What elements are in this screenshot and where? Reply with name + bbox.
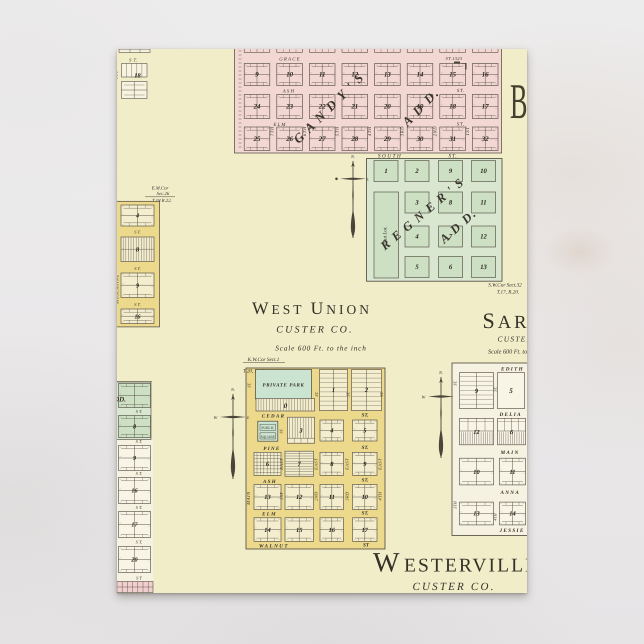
- svg-text:23: 23: [285, 104, 293, 111]
- svg-text:5TH: 5TH: [335, 126, 340, 136]
- svg-text:3: 3: [414, 200, 419, 207]
- svg-text:ST.: ST.: [314, 391, 319, 396]
- svg-text:ST.: ST.: [362, 510, 369, 516]
- svg-text:L: L: [366, 178, 369, 182]
- svg-text:ST.1323: ST.1323: [446, 56, 463, 61]
- svg-text:1ST: 1ST: [279, 492, 284, 500]
- svg-text:12: 12: [480, 234, 487, 241]
- svg-text:7TH: 7TH: [269, 126, 274, 136]
- svg-text:ST.: ST.: [452, 380, 457, 385]
- svg-text:24: 24: [253, 104, 261, 111]
- svg-text:PRIVATE PARK: PRIVATE PARK: [263, 383, 305, 389]
- svg-text:16: 16: [131, 488, 138, 495]
- svg-text:10: 10: [480, 168, 487, 175]
- svg-text:29: 29: [383, 136, 391, 143]
- svg-text:8: 8: [136, 246, 139, 253]
- svg-text:4: 4: [414, 234, 419, 241]
- svg-text:W: W: [214, 415, 218, 420]
- svg-text:0: 0: [284, 402, 288, 410]
- svg-text:ESTERVILLE: ESTERVILLE: [404, 556, 527, 577]
- svg-text:B: B: [510, 73, 527, 129]
- svg-text:ASH: ASH: [282, 88, 295, 94]
- svg-text:WALNUT: WALNUT: [259, 543, 289, 549]
- svg-text:5: 5: [509, 387, 513, 395]
- svg-text:EAST: EAST: [378, 458, 383, 471]
- svg-text:3RD: 3RD: [345, 491, 350, 501]
- svg-text:ANNA: ANNA: [500, 490, 521, 496]
- svg-text:25: 25: [253, 136, 261, 143]
- svg-text:Sec.26: Sec.26: [157, 191, 170, 197]
- svg-text:4TH: 4TH: [493, 512, 498, 520]
- svg-text:14: 14: [509, 511, 515, 518]
- svg-text:1 S T.: 1 S T.: [117, 71, 119, 79]
- svg-text:ST.: ST.: [493, 386, 498, 391]
- svg-text:MAIN: MAIN: [500, 450, 520, 456]
- svg-text:17: 17: [362, 527, 369, 534]
- svg-text:S T.: S T.: [136, 471, 143, 476]
- svg-text:N.: N.: [230, 387, 235, 392]
- svg-text:11: 11: [319, 72, 325, 79]
- svg-text:16: 16: [482, 72, 489, 79]
- svg-text:8: 8: [133, 424, 136, 431]
- svg-text:CUSTER CO.: CUSTER CO.: [412, 581, 495, 593]
- svg-text:S T.: S T.: [129, 57, 138, 62]
- svg-text:T.17, R.20.: T.17, R.20.: [497, 290, 520, 296]
- svg-text:17: 17: [482, 104, 489, 111]
- svg-text:4: 4: [329, 428, 333, 435]
- svg-text:3RD: 3RD: [400, 126, 405, 136]
- svg-text:20: 20: [383, 104, 391, 111]
- svg-text:32: 32: [481, 136, 489, 143]
- svg-text:31: 31: [448, 136, 456, 143]
- svg-text:EAST: EAST: [279, 458, 284, 471]
- svg-text:10: 10: [286, 72, 293, 79]
- svg-text:ST.: ST.: [457, 122, 465, 128]
- svg-text:N.: N.: [438, 370, 443, 375]
- svg-text:E.M.Cor: E.M.Cor: [151, 186, 169, 192]
- svg-text:12: 12: [296, 494, 303, 501]
- svg-text:ST: ST: [363, 542, 370, 548]
- svg-text:N.: N.: [350, 154, 355, 159]
- svg-text:ST.: ST.: [246, 382, 251, 387]
- svg-text:15: 15: [296, 527, 303, 534]
- svg-text:4TH: 4TH: [378, 491, 383, 500]
- svg-text:CUSTER CO.: CUSTER CO.: [276, 325, 354, 336]
- svg-text:9: 9: [255, 72, 259, 79]
- svg-text:13: 13: [384, 72, 391, 79]
- svg-text:4: 4: [135, 213, 139, 220]
- svg-text:DELIA: DELIA: [499, 412, 522, 418]
- svg-text:18: 18: [449, 104, 456, 111]
- svg-text:13: 13: [264, 494, 271, 501]
- svg-text:16: 16: [135, 314, 141, 320]
- svg-text:CUSTER CO.: CUSTER CO.: [498, 335, 528, 344]
- svg-text:4TH: 4TH: [367, 126, 372, 136]
- svg-text:9: 9: [136, 282, 139, 289]
- svg-text:Scale 600 Ft. to the inch: Scale 600 Ft. to the inch: [275, 344, 366, 353]
- svg-text:W: W: [422, 394, 426, 399]
- svg-text:2ND: 2ND: [314, 491, 319, 501]
- svg-text:15: 15: [449, 72, 456, 79]
- svg-text:16: 16: [329, 527, 336, 534]
- svg-text:13: 13: [473, 511, 480, 518]
- svg-text:S T.: S T.: [134, 302, 141, 307]
- svg-text:2ND: 2ND: [432, 126, 437, 137]
- svg-text:21: 21: [350, 104, 358, 111]
- svg-text:18: 18: [134, 73, 141, 80]
- svg-text:S T.: S T.: [136, 505, 143, 510]
- svg-text:ST.: ST.: [279, 428, 284, 433]
- svg-text:17: 17: [131, 522, 138, 529]
- svg-text:ST.: ST.: [346, 391, 351, 396]
- svg-text:S T.: S T.: [134, 266, 141, 271]
- svg-text:1: 1: [332, 387, 335, 394]
- svg-text:WEST UNION: WEST UNION: [252, 298, 372, 318]
- svg-text:12: 12: [473, 429, 479, 436]
- svg-text:S T.: S T.: [136, 439, 143, 444]
- svg-text:11: 11: [329, 494, 335, 501]
- svg-text:S.W.Cor Sect.32: S.W.Cor Sect.32: [488, 283, 522, 289]
- svg-text:ST.: ST.: [379, 391, 384, 396]
- svg-text:SARGENT: SARGENT: [483, 308, 528, 333]
- svg-text:10: 10: [362, 494, 369, 501]
- svg-text:11: 11: [509, 469, 515, 476]
- svg-text:13: 13: [480, 264, 487, 271]
- svg-text:S T: S T: [136, 576, 142, 581]
- svg-text:1 S T.: 1 S T.: [117, 560, 118, 569]
- svg-text:GRACE: GRACE: [279, 56, 300, 62]
- svg-text:MAIN: MAIN: [246, 491, 251, 506]
- svg-text:PINE: PINE: [263, 446, 280, 452]
- svg-text:EAST: EAST: [345, 458, 350, 471]
- svg-text:5TH: 5TH: [452, 500, 457, 508]
- svg-text:EAST: EAST: [314, 458, 319, 471]
- svg-text:ELM: ELM: [261, 512, 277, 518]
- svg-text:MUSCATINE: MUSCATINE: [117, 274, 120, 305]
- svg-text:W: W: [373, 548, 400, 579]
- svg-text:2: 2: [414, 168, 419, 175]
- svg-text:SQUARE: SQUARE: [261, 435, 276, 439]
- svg-text:20: 20: [130, 557, 137, 564]
- svg-text:JESSIE: JESSIE: [499, 528, 525, 534]
- svg-text:S T.: S T.: [134, 230, 141, 235]
- svg-text:S T.: S T.: [136, 540, 143, 545]
- svg-text:DD.: DD.: [117, 396, 126, 404]
- svg-text:S T.: S T.: [136, 409, 143, 414]
- svg-text:30: 30: [416, 136, 424, 143]
- svg-text:K.W.Cor Sect.1: K.W.Cor Sect.1: [247, 357, 280, 363]
- svg-text:28: 28: [350, 136, 358, 143]
- svg-text:ST.: ST.: [362, 412, 369, 418]
- svg-text:ST.: ST.: [457, 88, 465, 94]
- svg-text:10: 10: [473, 469, 480, 476]
- svg-text:14: 14: [264, 527, 270, 534]
- svg-text:ST.: ST.: [362, 445, 369, 451]
- svg-text:ASH: ASH: [262, 479, 277, 485]
- svg-text:ST.: ST.: [362, 478, 369, 484]
- svg-text:1ST: 1ST: [465, 127, 470, 136]
- svg-text:9: 9: [133, 455, 136, 462]
- svg-text:EDITH: EDITH: [500, 367, 524, 373]
- svg-text:Scale 600 Ft. to the inch: Scale 600 Ft. to the inch: [488, 349, 527, 356]
- svg-text:CEDAR: CEDAR: [262, 413, 285, 419]
- svg-text:27: 27: [318, 136, 326, 143]
- svg-text:11: 11: [480, 200, 486, 207]
- svg-text:14: 14: [417, 72, 424, 79]
- svg-text:PUBLIC: PUBLIC: [261, 426, 274, 430]
- svg-text:1: 1: [384, 168, 387, 175]
